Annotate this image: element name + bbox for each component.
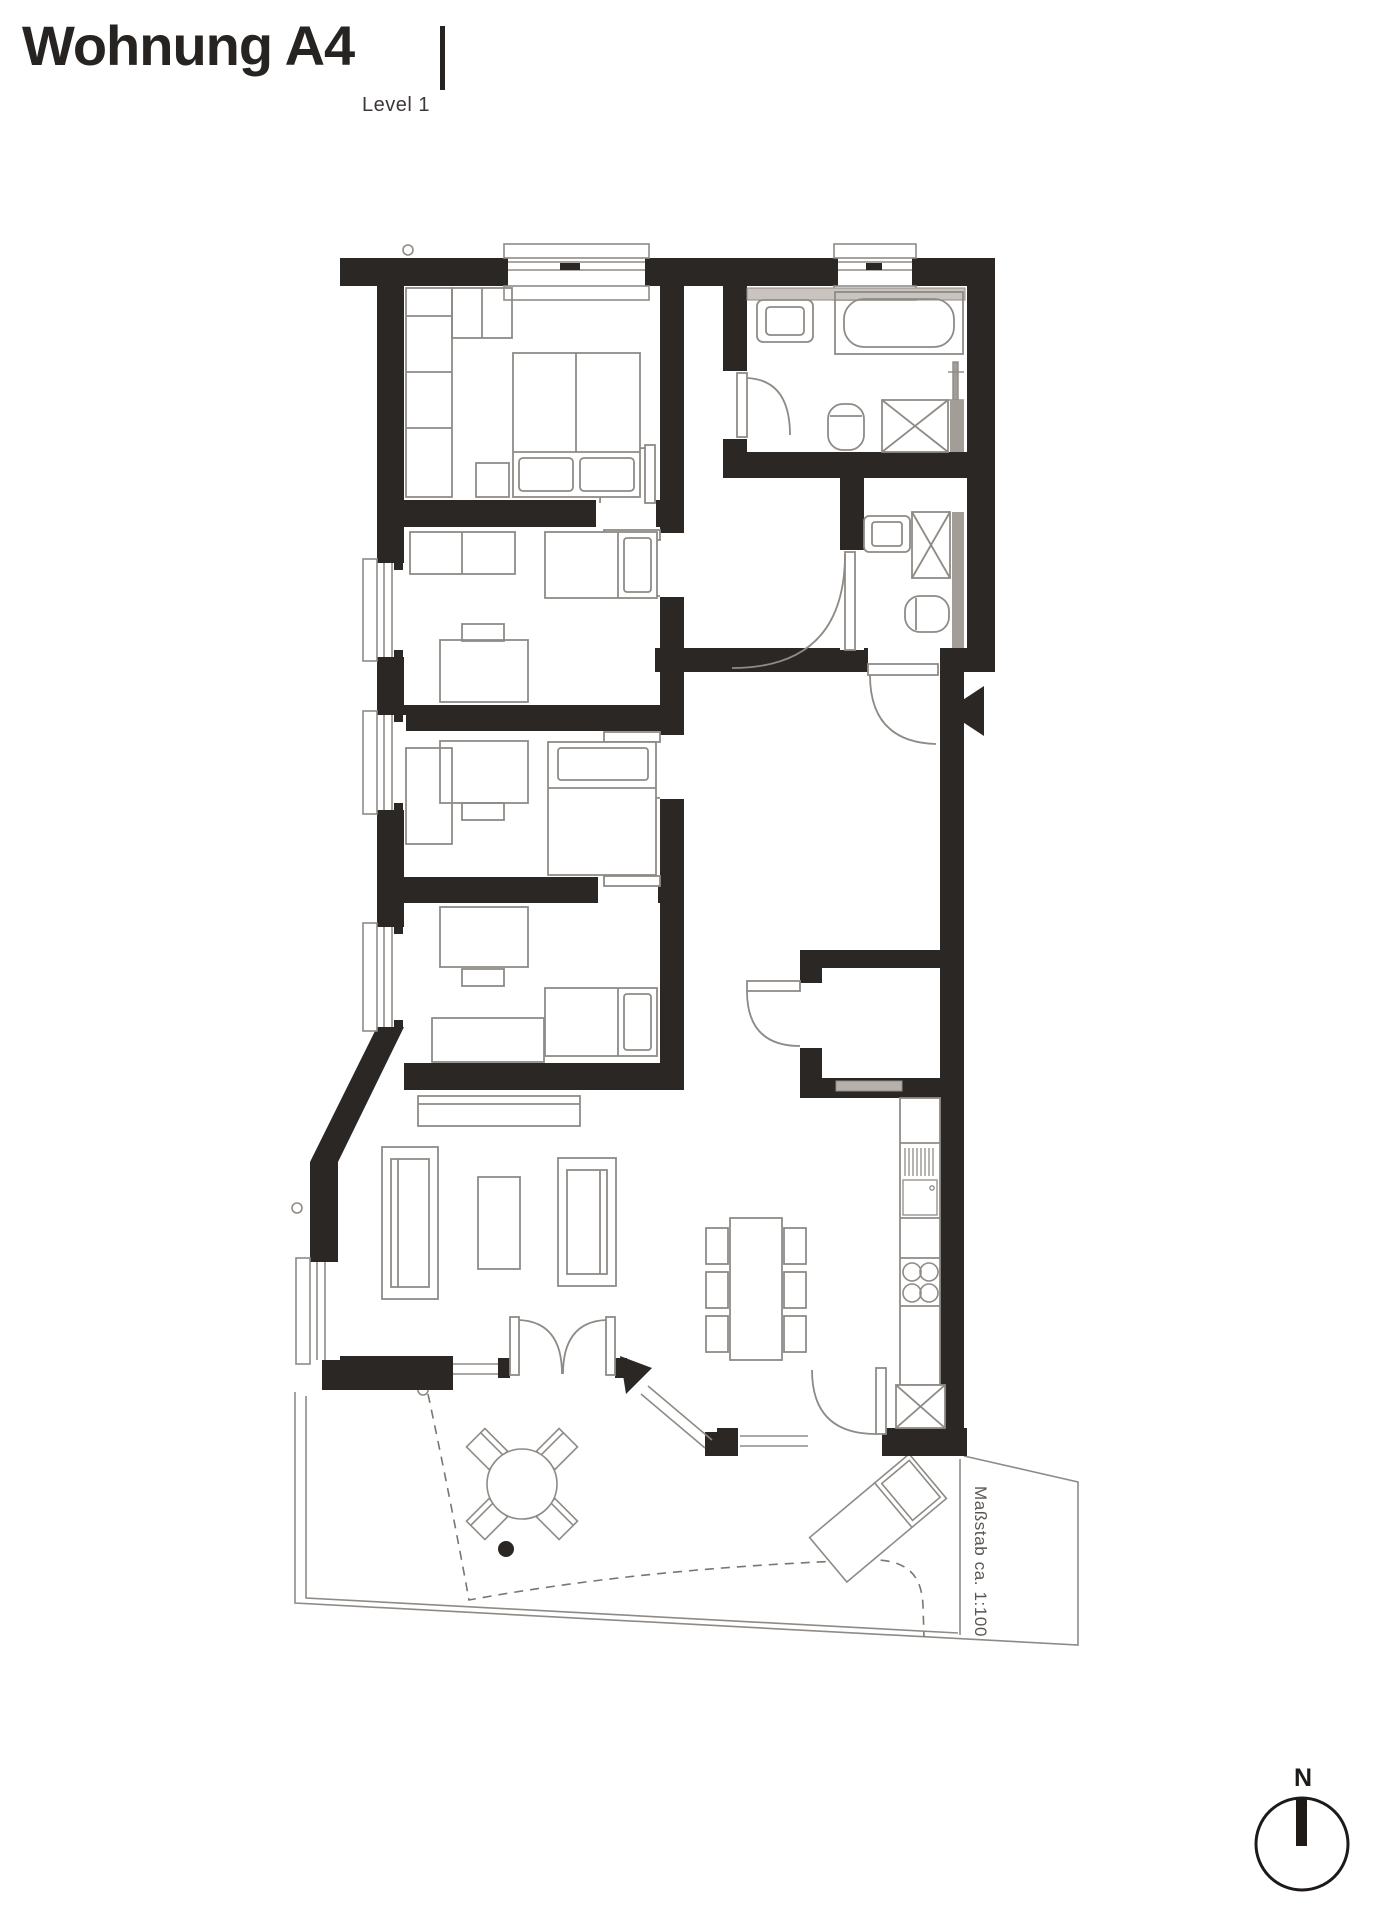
terrace-lounger bbox=[810, 1454, 947, 1582]
bedroom-4 bbox=[432, 907, 657, 1062]
tall-cabinet bbox=[896, 1385, 945, 1428]
toilet bbox=[828, 404, 864, 450]
compass-north-label: N bbox=[1288, 1764, 1318, 1793]
stove bbox=[903, 1263, 938, 1302]
dining-chair bbox=[784, 1228, 806, 1264]
sink bbox=[757, 300, 813, 342]
dining-chair bbox=[784, 1272, 806, 1308]
wardrobe bbox=[406, 288, 452, 497]
dining-chair bbox=[706, 1272, 728, 1308]
dining-chair bbox=[706, 1316, 728, 1352]
floor-plan-page: Wohnung A4 Level 1 bbox=[0, 0, 1382, 1920]
single-bed bbox=[545, 532, 657, 598]
dining-area bbox=[706, 1218, 806, 1360]
sliding-door bbox=[836, 1081, 902, 1091]
terrace-round-table bbox=[487, 1449, 557, 1519]
storage-door bbox=[747, 981, 800, 1046]
sofa-large bbox=[382, 1147, 438, 1299]
entrance-door bbox=[868, 664, 938, 744]
dresser bbox=[406, 748, 452, 844]
main-bath-door bbox=[737, 373, 790, 437]
sideboard bbox=[418, 1096, 580, 1126]
desk bbox=[440, 907, 528, 986]
toilet bbox=[905, 596, 949, 632]
sink bbox=[864, 516, 910, 552]
storage-room bbox=[836, 1081, 902, 1091]
bathtub bbox=[835, 292, 963, 354]
coffee-table bbox=[478, 1177, 520, 1269]
shower bbox=[882, 400, 964, 452]
kitchen bbox=[896, 1098, 945, 1428]
dining-table bbox=[730, 1218, 782, 1360]
dining-chair bbox=[706, 1228, 728, 1264]
french-doors bbox=[510, 1317, 615, 1375]
terrace-kitchen-door bbox=[812, 1368, 886, 1434]
shower bbox=[912, 512, 950, 578]
guest-bathroom bbox=[864, 512, 964, 648]
scale-note: Maßstab ca. 1:100 bbox=[970, 1486, 990, 1637]
single-bed bbox=[548, 742, 656, 875]
marker-circle bbox=[403, 245, 413, 255]
single-bed bbox=[545, 988, 657, 1056]
terrace-dot bbox=[498, 1541, 514, 1557]
main-bathroom bbox=[747, 288, 965, 452]
double-bed bbox=[513, 353, 640, 497]
marker-circle bbox=[292, 1203, 302, 1213]
dresser bbox=[432, 1018, 544, 1062]
nightstand bbox=[476, 463, 509, 497]
living-room bbox=[382, 1096, 616, 1299]
bedroom-3 bbox=[406, 741, 656, 875]
kitchen-counter bbox=[900, 1098, 940, 1428]
bedroom-2 bbox=[410, 532, 657, 702]
sofa-small bbox=[558, 1158, 616, 1286]
master-bedroom bbox=[406, 288, 640, 497]
north-compass-icon bbox=[1256, 1798, 1348, 1890]
desk bbox=[440, 741, 528, 820]
floor-plan-svg bbox=[0, 0, 1382, 1920]
terrace-table-set bbox=[466, 1428, 577, 1557]
fridge bbox=[903, 1148, 937, 1215]
dining-chair bbox=[784, 1316, 806, 1352]
desk bbox=[440, 624, 528, 702]
